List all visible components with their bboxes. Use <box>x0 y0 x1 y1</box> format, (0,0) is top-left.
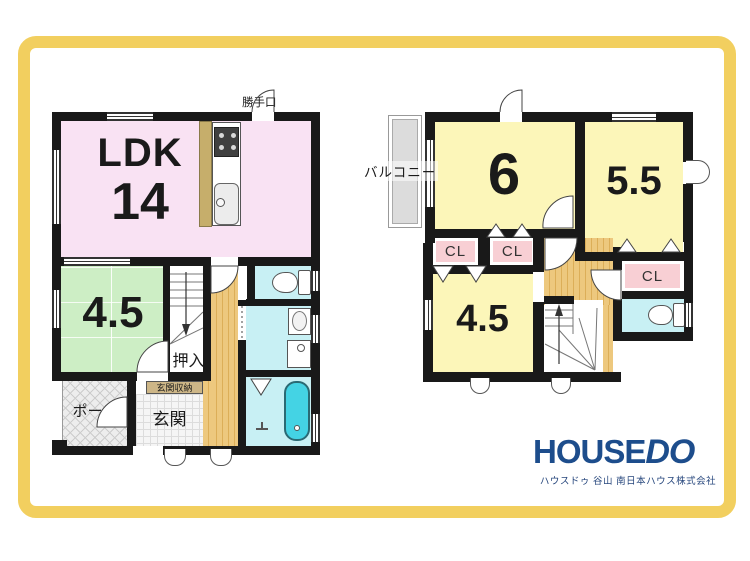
window <box>52 290 61 328</box>
window <box>311 414 320 442</box>
balcony-label: バルコニー <box>362 161 438 181</box>
sliding-door <box>64 257 130 266</box>
wall-segment <box>613 332 693 341</box>
ldk-size-label: 14 <box>85 176 195 228</box>
room-4-5-2f-label: 4.5 <box>432 292 533 346</box>
sliding-door-opening <box>238 306 246 340</box>
wall-segment <box>163 266 170 372</box>
toilet-bowl-1f <box>272 272 298 293</box>
closet-2-label: CL <box>502 243 523 260</box>
window <box>612 112 656 122</box>
wall-segment <box>52 440 67 455</box>
porch-label: ポーチ <box>64 400 126 421</box>
wall-segment <box>246 370 320 377</box>
toilet-tank-1f <box>298 270 311 295</box>
kitchen-counter <box>199 121 212 227</box>
window <box>52 150 61 224</box>
wall-segment <box>544 296 574 304</box>
logo-house-text: HOUSE <box>533 433 645 470</box>
wall-segment <box>575 252 693 261</box>
toilet-bowl-2f <box>648 305 673 325</box>
entrance-storage-label: 玄関収納 <box>156 381 192 394</box>
wall-segment <box>203 257 211 381</box>
faucet-icon <box>216 198 225 207</box>
closet-3-label: CL <box>642 268 663 285</box>
closet-2: CL <box>490 238 535 265</box>
door-opening <box>500 112 522 122</box>
wall-segment <box>533 229 544 382</box>
wall-segment <box>52 446 320 455</box>
wall-segment <box>247 266 255 300</box>
wall-segment <box>613 291 693 299</box>
bath-faucet-stem <box>261 422 263 430</box>
logo-do-text: DO <box>645 433 694 471</box>
hallway-1f-lower <box>203 381 211 446</box>
door-opening <box>133 446 163 455</box>
back-door-opening <box>252 112 274 121</box>
floor-plan-canvas: 押入 ポーチ 玄関 玄関収納 <box>0 0 750 561</box>
wall-segment <box>478 238 490 265</box>
staircase-1f <box>170 266 203 346</box>
door-5-5 <box>686 160 710 184</box>
company-line: ハウスドゥ 谷山 南日本ハウス株式会社 <box>523 473 733 487</box>
ldk-label: LDK <box>85 133 195 173</box>
wall-segment <box>425 265 544 274</box>
wall-segment <box>425 229 585 238</box>
logo-housedo: HOUSEDO <box>533 433 694 472</box>
door-opening <box>533 272 544 302</box>
washbasin-bowl <box>292 311 307 331</box>
bathtub-drain <box>294 425 300 431</box>
hallway-2f-side <box>603 305 613 372</box>
room-4-5-1f-label: 4.5 <box>63 284 163 342</box>
wall-segment <box>423 372 621 382</box>
closet-3: CL <box>622 261 683 291</box>
room-5-5-label: 5.5 <box>585 152 683 210</box>
entrance-storage: 玄関収納 <box>146 381 203 394</box>
wall-segment <box>52 112 320 121</box>
window <box>107 112 153 121</box>
staircase-2f <box>545 300 603 372</box>
door-opening <box>211 257 238 266</box>
wall-segment <box>246 299 320 306</box>
oshiire-label: 押入 <box>172 347 204 371</box>
closet-1-label: CL <box>445 243 466 260</box>
window <box>311 271 320 291</box>
wall-segment <box>127 381 136 455</box>
closet-1: CL <box>433 238 478 265</box>
stove-icon <box>214 127 239 157</box>
back-door-label: 勝手口 <box>241 94 278 110</box>
hallway-1f <box>211 266 238 446</box>
window <box>684 303 693 327</box>
wall-segment <box>52 372 211 381</box>
bathtub <box>284 381 310 441</box>
room-6-label: 6 <box>433 140 575 210</box>
washing-machine-door <box>297 344 305 352</box>
door-opening <box>137 372 168 381</box>
door-opening <box>613 270 622 299</box>
entrance-label: 玄関 <box>136 405 203 430</box>
window <box>311 315 320 343</box>
